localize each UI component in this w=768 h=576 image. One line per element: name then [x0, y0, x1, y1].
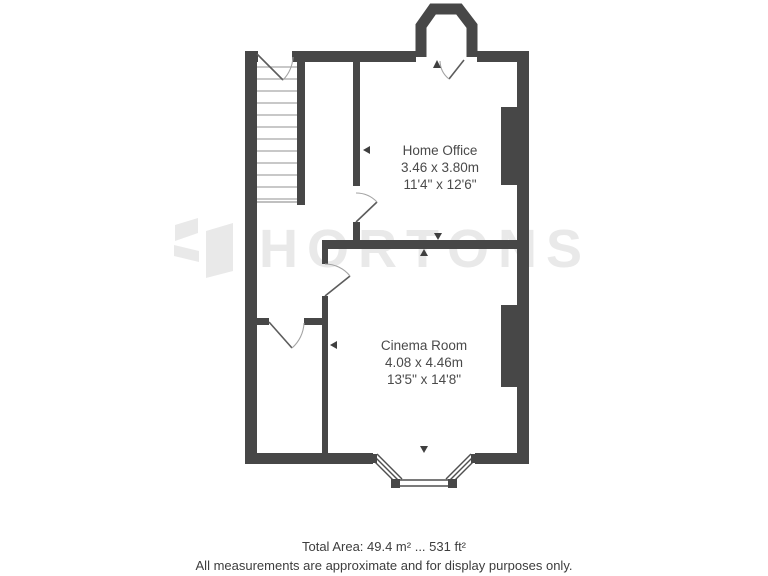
home-office-door	[356, 193, 377, 222]
bay-joint	[369, 454, 377, 463]
room-size-imperial: 13'5" x 14'8"	[387, 372, 461, 387]
stairs	[257, 67, 297, 202]
room-size-metric: 3.46 x 3.80m	[401, 160, 479, 175]
doors	[257, 54, 464, 348]
bay-joint	[448, 479, 457, 488]
floorplan-page: HORTONS	[0, 0, 768, 576]
entrance-door	[440, 60, 464, 79]
disclaimer-text: All measurements are approximate and for…	[196, 558, 573, 573]
stair-treads	[257, 67, 297, 199]
hallway-door	[269, 322, 304, 348]
bay-joint	[391, 479, 400, 488]
room-size-imperial: 11'4" x 12'6"	[403, 177, 476, 192]
wall-segment	[353, 62, 360, 186]
total-area-text: Total Area: 49.4 m² ... 531 ft²	[302, 539, 467, 554]
wall-segment	[322, 249, 328, 264]
arrow-down-icon	[420, 446, 428, 453]
bay-window	[369, 454, 479, 488]
window-cinema-room	[501, 305, 518, 387]
dividing-wall	[322, 240, 517, 249]
wall-segment	[322, 296, 328, 453]
window-home-office	[501, 107, 518, 185]
wall-segment	[353, 222, 360, 241]
wall-segment	[475, 453, 529, 464]
room-label-home-office: Home Office 3.46 x 3.80m 11'4" x 12'6"	[401, 143, 479, 192]
arrow-left-icon	[363, 146, 370, 154]
room-name: Cinema Room	[381, 338, 467, 353]
wall-segment	[304, 318, 322, 325]
room-name: Home Office	[403, 143, 478, 158]
wall-segment	[245, 453, 373, 464]
wall-segment	[517, 51, 529, 464]
wall-segment	[245, 51, 257, 464]
bay-joint	[471, 454, 479, 463]
footer: Total Area: 49.4 m² ... 531 ft² All meas…	[196, 539, 573, 573]
floorplan-canvas: HORTONS	[0, 0, 768, 576]
wall-segment	[257, 318, 269, 325]
porch-walls	[421, 9, 472, 57]
room-label-cinema-room: Cinema Room 4.08 x 4.46m 13'5" x 14'8"	[381, 338, 467, 387]
hortons-logo-icon	[174, 218, 233, 278]
stair-wall	[297, 62, 305, 205]
arrow-left-icon	[330, 341, 337, 349]
room-size-metric: 4.08 x 4.46m	[385, 355, 463, 370]
wall-segment	[292, 51, 416, 62]
